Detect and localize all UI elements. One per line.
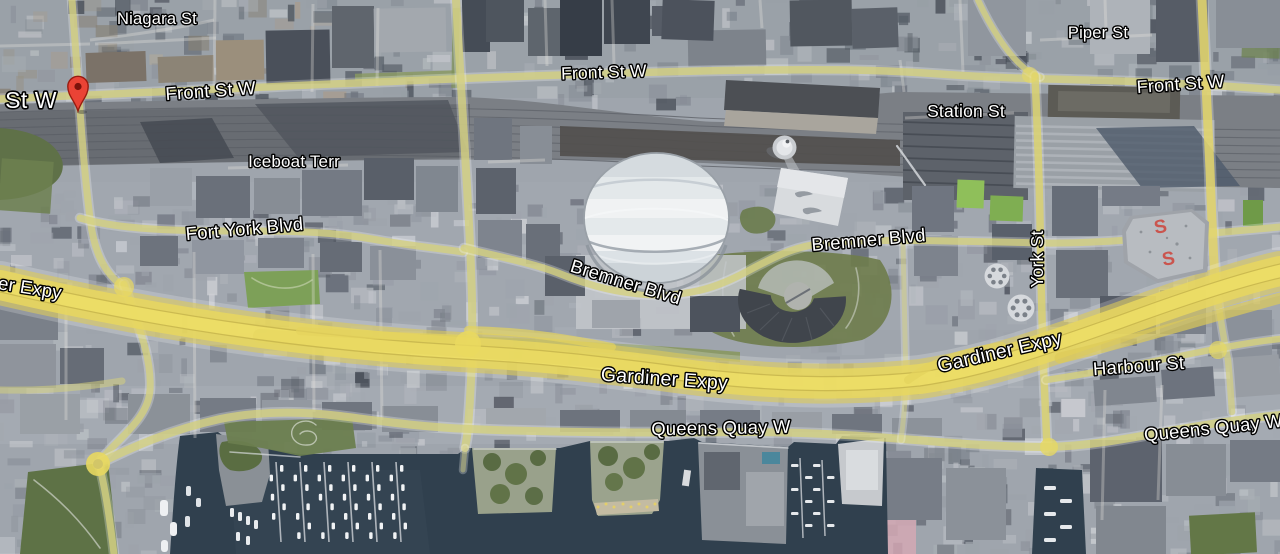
svg-text:Piper St: Piper St [1068,24,1129,42]
svg-text:Niagara St: Niagara St [117,10,197,28]
svg-text:Front St W: Front St W [561,61,648,84]
svg-text:Station St: Station St [927,101,1005,121]
svg-text:Queens Quay W: Queens Quay W [651,416,791,439]
svg-text:York St: York St [1027,230,1047,287]
svg-text:St W: St W [5,87,57,113]
svg-text:Iceboat Terr: Iceboat Terr [248,152,340,171]
